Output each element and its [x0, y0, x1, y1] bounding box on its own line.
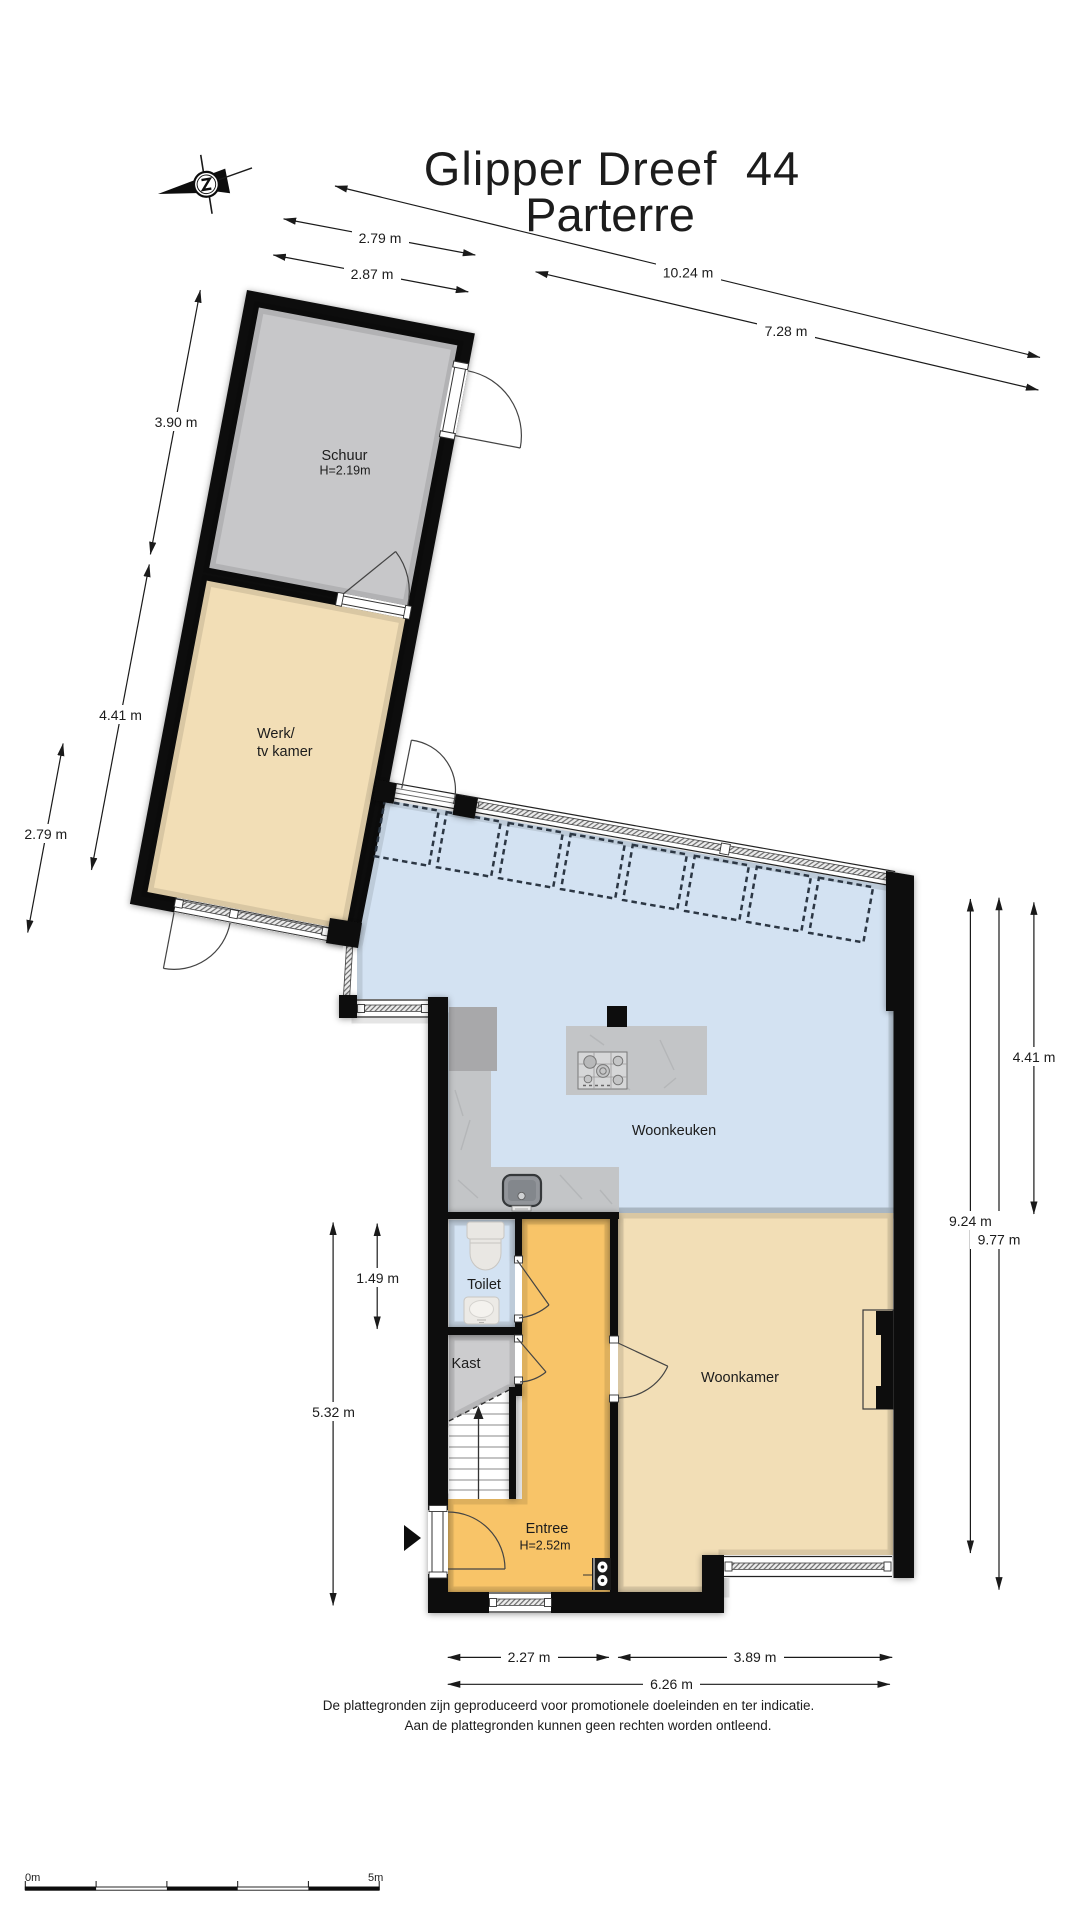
svg-text:Woonkamer: Woonkamer [701, 1370, 779, 1386]
svg-text:0m: 0m [25, 1872, 40, 1884]
svg-text:2.79 m: 2.79 m [359, 230, 402, 246]
svg-text:Parterre: Parterre [525, 188, 695, 241]
svg-text:1.49 m: 1.49 m [356, 1270, 399, 1286]
svg-text:5m: 5m [368, 1872, 383, 1884]
svg-text:Schuur: Schuur [322, 448, 368, 464]
svg-text:9.24 m: 9.24 m [949, 1213, 992, 1229]
svg-text:H=2.52m: H=2.52m [519, 1539, 570, 1553]
svg-text:10.24 m: 10.24 m [663, 265, 714, 281]
svg-text:De plattegronden zijn geproduc: De plattegronden zijn geproduceerd voor … [323, 1698, 815, 1713]
svg-text:7.28 m: 7.28 m [765, 323, 808, 339]
svg-text:2.79 m: 2.79 m [24, 826, 67, 842]
svg-text:6.26 m: 6.26 m [650, 1676, 693, 1692]
svg-text:4.41 m: 4.41 m [1013, 1049, 1056, 1065]
svg-text:2.87 m: 2.87 m [351, 266, 394, 282]
svg-text:Entree: Entree [526, 1521, 569, 1537]
svg-text:tv kamer: tv kamer [257, 744, 313, 760]
svg-text:5.32 m: 5.32 m [312, 1404, 355, 1420]
svg-text:4.41 m: 4.41 m [99, 707, 142, 723]
svg-text:Toilet: Toilet [467, 1277, 501, 1293]
svg-text:Aan de plattegronden kunnen ge: Aan de plattegronden kunnen geen rechten… [404, 1718, 771, 1733]
svg-text:3.89 m: 3.89 m [734, 1649, 777, 1665]
svg-text:9.77 m: 9.77 m [978, 1232, 1021, 1248]
svg-text:Woonkeuken: Woonkeuken [632, 1123, 716, 1139]
svg-text:3.90 m: 3.90 m [155, 414, 198, 430]
svg-text:Werk/: Werk/ [257, 726, 296, 742]
svg-text:H=2.19m: H=2.19m [319, 464, 370, 478]
svg-text:Kast: Kast [451, 1356, 480, 1372]
svg-text:2.27 m: 2.27 m [508, 1649, 551, 1665]
